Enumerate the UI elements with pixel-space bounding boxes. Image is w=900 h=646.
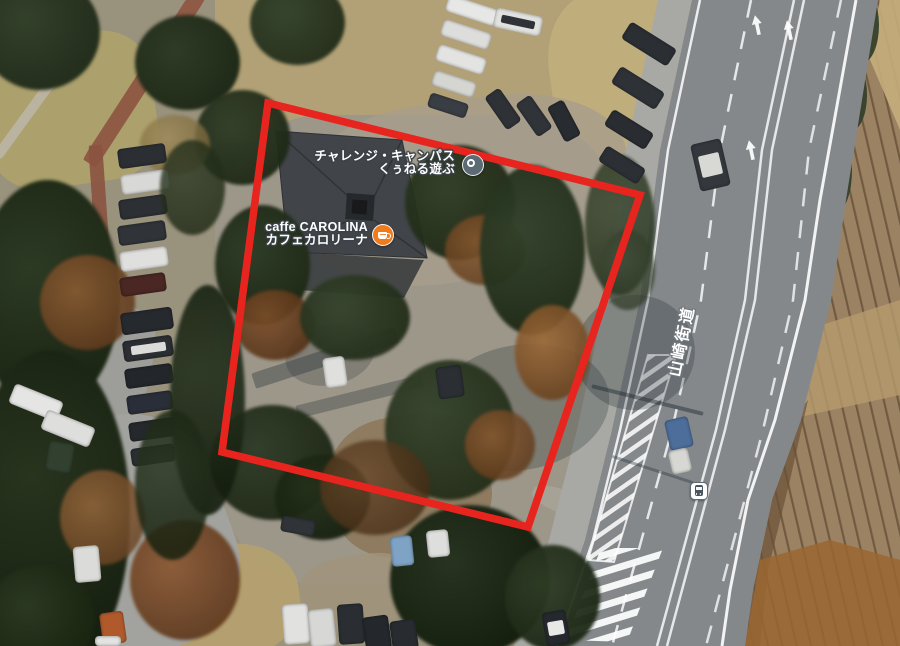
- poi-label-line2: カフェカロリーナ: [265, 234, 368, 247]
- place-dot-icon: [467, 159, 475, 167]
- bus-stop-icon[interactable]: [690, 482, 708, 500]
- map-canvas[interactable]: 山崎街道 チャレンジ・キャンパス くぅねる遊ぶ caffe CAROLINA カ…: [0, 0, 900, 646]
- poi-marker-caffe-carolina[interactable]: [372, 224, 394, 246]
- poi-label-challenge-campus[interactable]: チャレンジ・キャンパス くぅねる遊ぶ: [314, 150, 455, 175]
- poi-label-line1: caffe CAROLINA: [265, 221, 368, 234]
- poi-label-line2: くぅねる遊ぶ: [314, 163, 455, 176]
- bus-glyph: [695, 485, 703, 496]
- boundary-overlay-svg: [0, 0, 900, 646]
- poi-marker-challenge-campus[interactable]: [462, 154, 484, 176]
- coffee-cup-icon: [378, 232, 387, 239]
- poi-label-line1: チャレンジ・キャンパス: [314, 150, 455, 163]
- poi-label-caffe-carolina[interactable]: caffe CAROLINA カフェカロリーナ: [265, 221, 368, 246]
